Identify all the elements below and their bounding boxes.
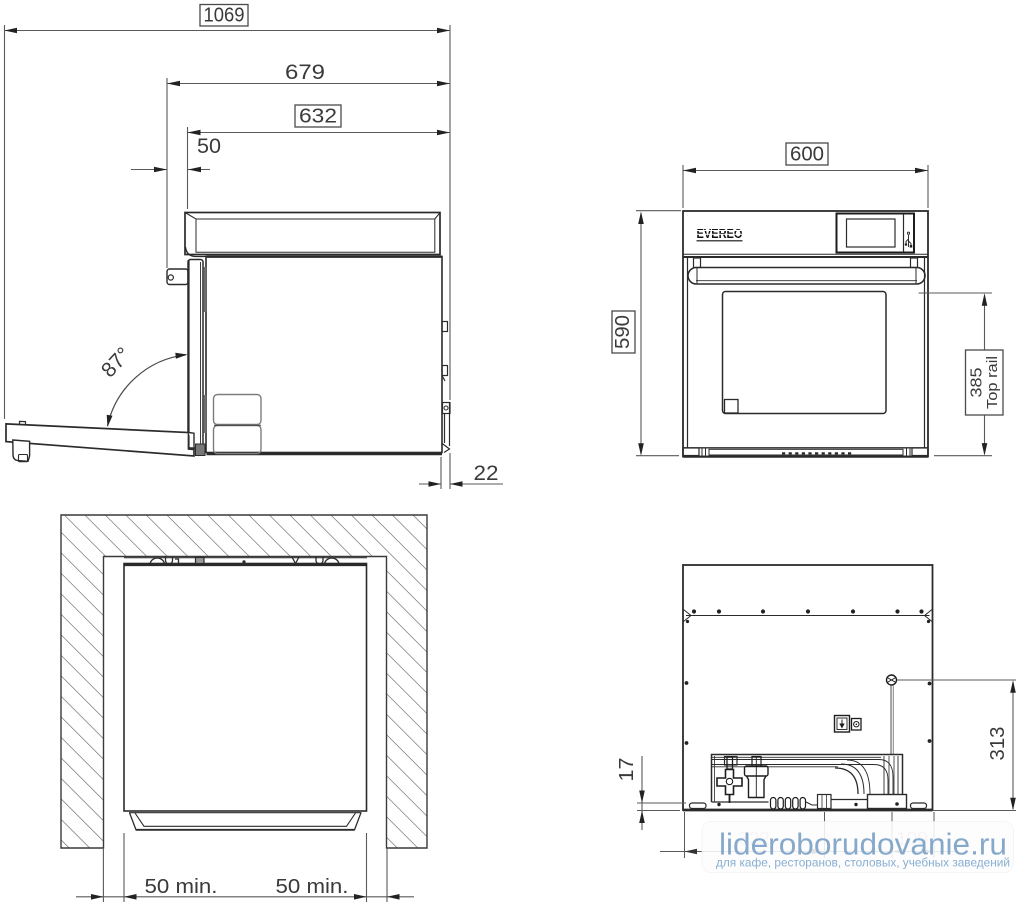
- svg-text:313: 313: [987, 727, 1009, 761]
- svg-text:Top rail: Top rail: [984, 356, 1001, 409]
- svg-text:679: 679: [285, 61, 325, 84]
- svg-text:50 min.: 50 min.: [145, 876, 218, 898]
- svg-text:17: 17: [616, 758, 638, 782]
- svg-text:632: 632: [299, 106, 337, 128]
- svg-text:600: 600: [790, 144, 824, 166]
- svg-text:EVEREO: EVEREO: [697, 226, 743, 241]
- svg-text:50 min.: 50 min.: [276, 876, 349, 898]
- svg-text:22: 22: [474, 462, 499, 485]
- svg-text:1069: 1069: [204, 5, 245, 27]
- svg-text:590: 590: [612, 315, 634, 349]
- svg-text:50: 50: [197, 135, 221, 158]
- svg-text:для кафе, ресторанов, столовых: для кафе, ресторанов, столовых, учебных …: [716, 856, 1010, 870]
- svg-text:385: 385: [969, 367, 986, 397]
